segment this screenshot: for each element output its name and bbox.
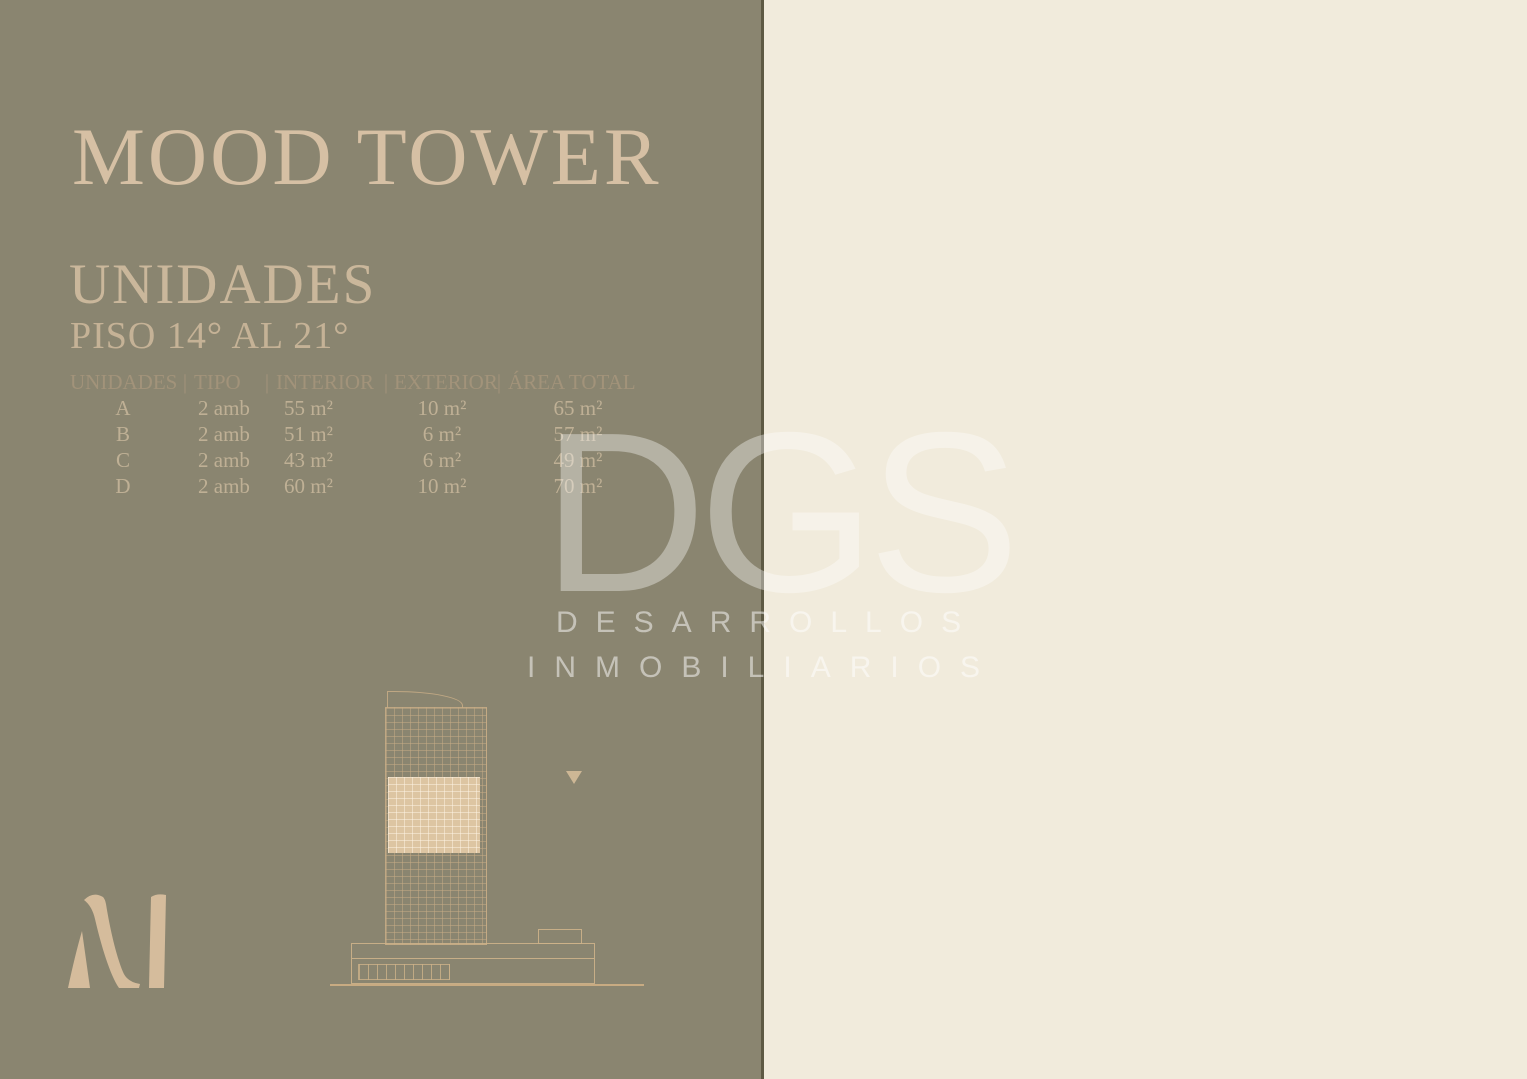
- section-subtitle: PISO 14° AL 21°: [70, 314, 349, 358]
- table-cell-interior: 55 m²: [276, 395, 378, 421]
- header-separator: |: [490, 369, 508, 395]
- table-cell-unidad: A: [70, 395, 176, 421]
- page-title: MOOD TOWER: [72, 110, 662, 204]
- col-header-exterior: EXTERIOR: [394, 369, 490, 395]
- building-ground-line: [330, 984, 644, 986]
- table-cell-tipo: 2 amb: [194, 473, 258, 499]
- table-cell-area-total: 57 m²: [508, 421, 648, 447]
- m-logo-icon: [66, 893, 191, 993]
- building-highlight-floors: [388, 777, 480, 853]
- col-header-unidades: UNIDADES: [70, 369, 176, 395]
- table-cell-exterior: 6 m²: [394, 421, 490, 447]
- table-cell-exterior: 10 m²: [394, 473, 490, 499]
- brochure-page: MOOD TOWER UNIDADES PISO 14° AL 21° UNID…: [0, 0, 1527, 1079]
- down-triangle-icon: [566, 771, 582, 784]
- right-panel: D C B A AV. HIPÓLITO YRIGOYEN Todas las …: [764, 0, 1527, 1079]
- col-header-area-total: ÁREA TOTAL: [508, 369, 648, 395]
- header-separator: |: [258, 369, 276, 395]
- col-header-tipo: TIPO: [194, 369, 258, 395]
- section-title: UNIDADES: [69, 252, 376, 317]
- building-annex: [538, 929, 582, 944]
- table-cell-unidad: B: [70, 421, 176, 447]
- table-cell-area-total: 70 m²: [508, 473, 648, 499]
- table-cell-unidad: C: [70, 447, 176, 473]
- table-cell-area-total: 49 m²: [508, 447, 648, 473]
- building-crown: [387, 691, 463, 708]
- table-cell-tipo: 2 amb: [194, 447, 258, 473]
- header-separator: |: [176, 369, 194, 395]
- table-cell-interior: 43 m²: [276, 447, 378, 473]
- header-separator: |: [378, 369, 394, 395]
- table-cell-area-total: 65 m²: [508, 395, 648, 421]
- left-panel: MOOD TOWER UNIDADES PISO 14° AL 21° UNID…: [0, 0, 762, 1079]
- table-cell-interior: 51 m²: [276, 421, 378, 447]
- table-cell-exterior: 6 m²: [394, 447, 490, 473]
- table-cell-tipo: 2 amb: [194, 395, 258, 421]
- col-header-interior: INTERIOR: [276, 369, 378, 395]
- table-cell-tipo: 2 amb: [194, 421, 258, 447]
- table-cell-unidad: D: [70, 473, 176, 499]
- table-cell-interior: 60 m²: [276, 473, 378, 499]
- units-table: UNIDADES | TIPO | INTERIOR | EXTERIOR | …: [70, 369, 648, 499]
- table-cell-exterior: 10 m²: [394, 395, 490, 421]
- building-podium: [351, 943, 595, 984]
